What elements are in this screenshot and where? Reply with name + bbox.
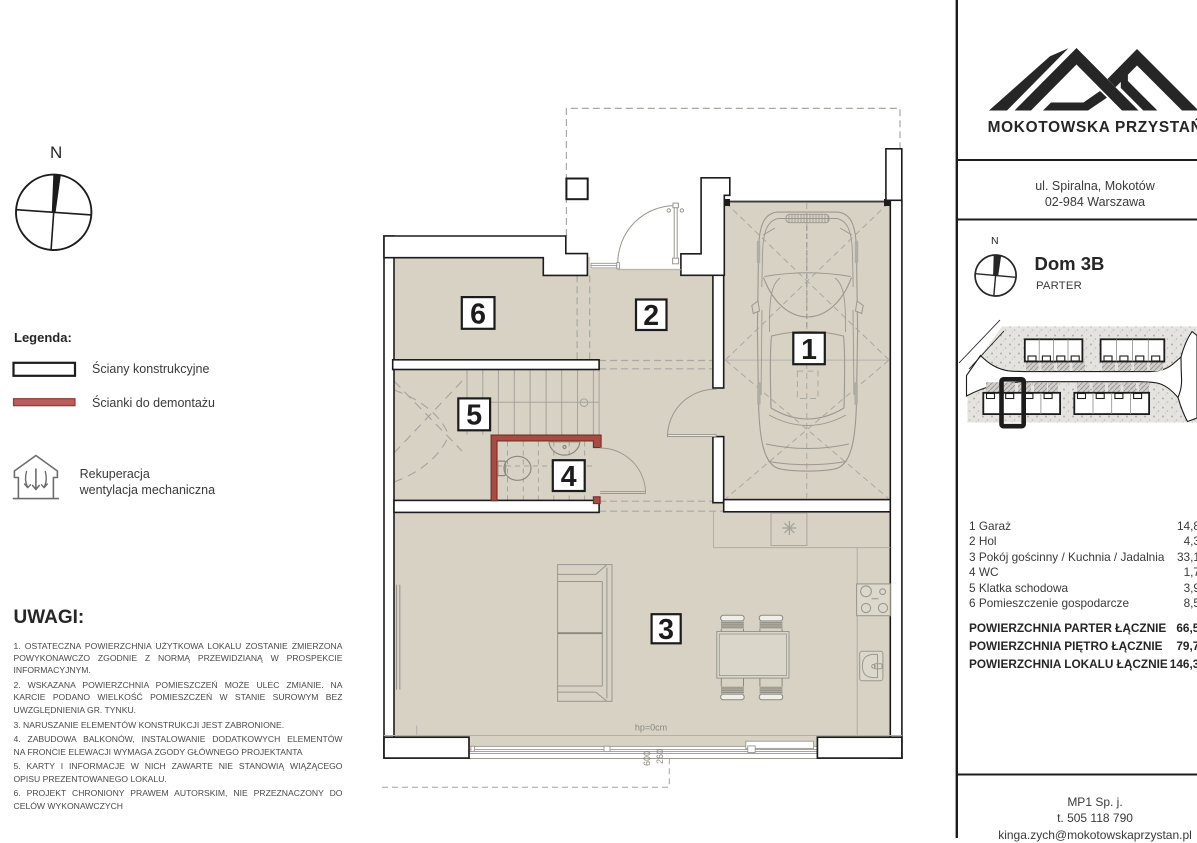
svg-text:2: 2 xyxy=(643,300,659,332)
svg-text:4: 4 xyxy=(561,461,577,493)
svg-text:260: 260 xyxy=(655,749,665,764)
svg-text:5: 5 xyxy=(466,400,482,432)
svg-text:hp=0cm: hp=0cm xyxy=(635,723,667,733)
svg-text:3: 3 xyxy=(658,614,674,646)
svg-text:600: 600 xyxy=(642,751,652,766)
svg-text:1: 1 xyxy=(801,334,817,366)
svg-text:6: 6 xyxy=(470,298,486,330)
